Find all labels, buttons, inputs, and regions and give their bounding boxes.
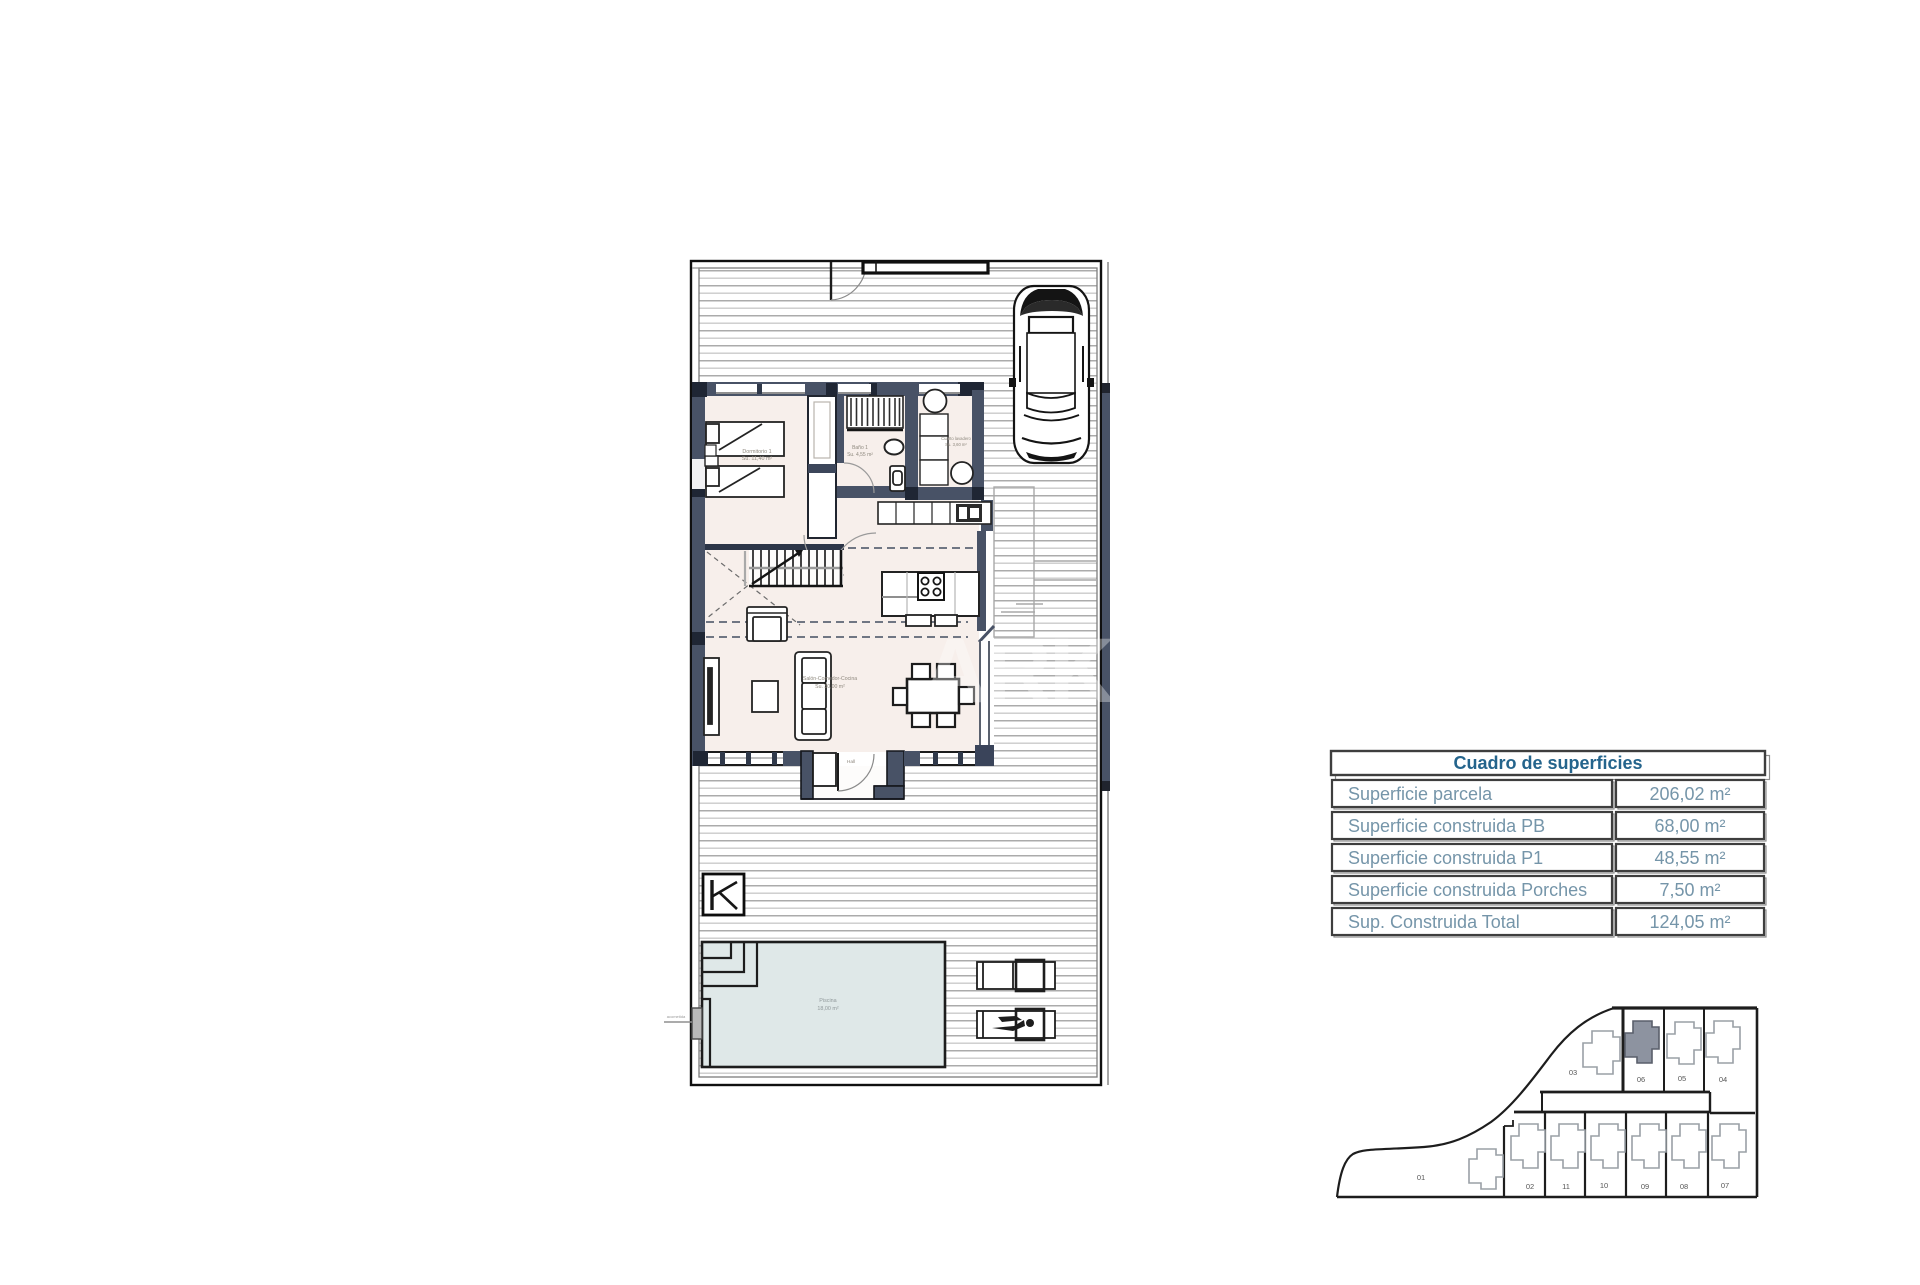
svg-text:01: 01	[1417, 1173, 1425, 1182]
svg-text:124,05 m²: 124,05 m²	[1649, 912, 1730, 932]
svg-text:Cuarto lavadero: Cuarto lavadero	[941, 436, 971, 441]
svg-text:18,00 m²: 18,00 m²	[817, 1006, 838, 1012]
svg-text:10: 10	[1600, 1181, 1608, 1190]
svg-text:Piscina: Piscina	[819, 998, 836, 1004]
svg-text:Superficie construida P1: Superficie construida P1	[1348, 848, 1543, 868]
svg-text:07: 07	[1721, 1181, 1729, 1190]
svg-text:Salón-Comedor-Cocina: Salón-Comedor-Cocina	[803, 676, 857, 682]
svg-text:7,50 m²: 7,50 m²	[1659, 880, 1720, 900]
svg-text:Su. 30,00 m²: Su. 30,00 m²	[815, 684, 845, 690]
svg-text:Sup. Construida Total: Sup. Construida Total	[1348, 912, 1520, 932]
svg-text:02: 02	[1526, 1182, 1534, 1191]
svg-text:Hall: Hall	[847, 759, 855, 765]
svg-text:11: 11	[1562, 1182, 1570, 1191]
svg-text:Superficie parcela: Superficie parcela	[1348, 784, 1493, 804]
svg-text:Baño 1: Baño 1	[852, 445, 868, 451]
svg-text:09: 09	[1641, 1182, 1649, 1191]
svg-text:06: 06	[1637, 1075, 1645, 1084]
svg-text:ARK: ARK	[922, 620, 1115, 722]
svg-text:05: 05	[1678, 1074, 1686, 1083]
svg-text:68,00 m²: 68,00 m²	[1654, 816, 1725, 836]
svg-text:Su. 11,40 m²: Su. 11,40 m²	[742, 456, 773, 462]
svg-text:Dormitorio 1: Dormitorio 1	[742, 449, 771, 455]
svg-text:acometida: acometida	[667, 1014, 686, 1019]
svg-text:Cuadro de superficies: Cuadro de superficies	[1453, 753, 1642, 773]
svg-text:Superficie construida PB: Superficie construida PB	[1348, 816, 1545, 836]
svg-text:Su. 4,55 m²: Su. 4,55 m²	[847, 452, 873, 458]
svg-text:48,55 m²: 48,55 m²	[1654, 848, 1725, 868]
svg-text:03: 03	[1569, 1068, 1577, 1077]
svg-text:04: 04	[1719, 1075, 1727, 1084]
svg-text:206,02 m²: 206,02 m²	[1649, 784, 1730, 804]
svg-text:Superficie construida Porches: Superficie construida Porches	[1348, 880, 1587, 900]
svg-text:08: 08	[1680, 1182, 1688, 1191]
svg-text:Su. 3,60 m²: Su. 3,60 m²	[945, 442, 967, 447]
